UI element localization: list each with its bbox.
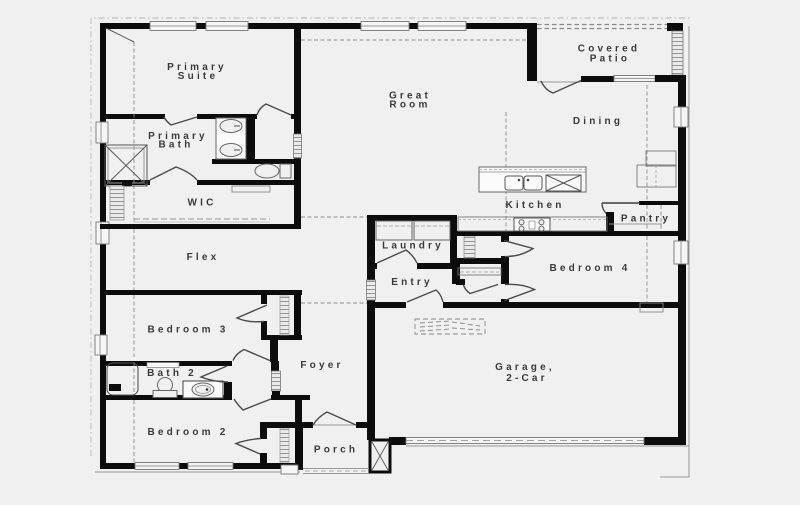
svg-text:Patio: Patio bbox=[590, 54, 630, 65]
svg-text:Suite: Suite bbox=[178, 71, 218, 82]
svg-text:Dining: Dining bbox=[573, 116, 623, 127]
svg-text:Bedroom 4: Bedroom 4 bbox=[549, 263, 630, 274]
svg-text:Bath: Bath bbox=[158, 140, 193, 151]
svg-text:2-Car: 2-Car bbox=[506, 373, 548, 384]
svg-text:WIC: WIC bbox=[187, 198, 216, 209]
svg-text:Laundry: Laundry bbox=[382, 241, 444, 252]
svg-text:Kitchen: Kitchen bbox=[505, 200, 564, 211]
svg-text:Entry: Entry bbox=[391, 277, 433, 288]
svg-text:Garage,: Garage, bbox=[495, 362, 555, 373]
svg-text:Bath 2: Bath 2 bbox=[147, 368, 197, 379]
svg-text:Room: Room bbox=[389, 100, 430, 111]
svg-text:Bedroom 3: Bedroom 3 bbox=[147, 325, 228, 336]
svg-text:Foyer: Foyer bbox=[300, 360, 343, 371]
svg-text:Porch: Porch bbox=[314, 445, 358, 456]
svg-text:Bedroom 2: Bedroom 2 bbox=[147, 427, 228, 438]
svg-text:Pantry: Pantry bbox=[621, 214, 671, 225]
svg-text:Flex: Flex bbox=[187, 252, 220, 263]
